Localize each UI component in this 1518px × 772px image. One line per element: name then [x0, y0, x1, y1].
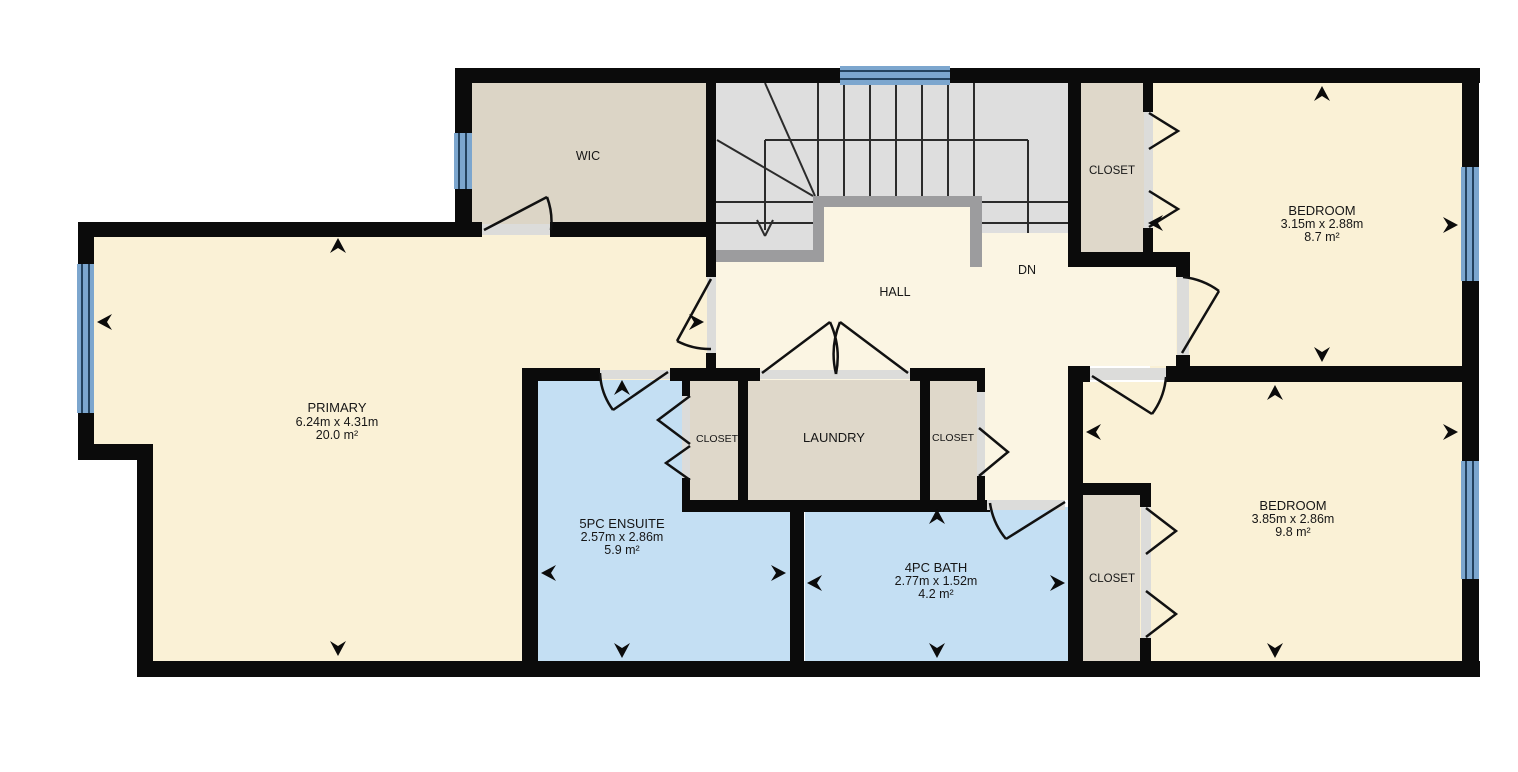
label-stairs-dn: DN — [1018, 263, 1036, 277]
wall-segment — [1462, 68, 1479, 677]
window-stairs — [840, 66, 950, 85]
wall-segment — [1068, 366, 1083, 661]
wall-segment — [1176, 255, 1190, 277]
wall-segment — [78, 222, 482, 237]
wall-segment — [137, 661, 1480, 677]
wall-segment — [910, 368, 985, 381]
wall-segment — [670, 368, 760, 381]
floorplan-canvas: WIC PRIMARY 6.24m x 4.31m 20.0 m² HALL D… — [0, 0, 1518, 772]
wall-segment — [1068, 83, 1081, 255]
room-hall-passage — [1068, 267, 1176, 366]
label-hall: HALL — [879, 285, 910, 299]
label-closet-ensuite: CLOSET — [696, 433, 739, 445]
wall-segment — [137, 444, 153, 672]
wall-segment — [1166, 366, 1462, 382]
wall-segment — [455, 68, 1480, 83]
label-bedroom-bottom: BEDROOM — [1259, 498, 1326, 513]
wall-segment — [1143, 228, 1153, 255]
wall-segment — [682, 500, 990, 512]
wall-segment — [790, 500, 804, 661]
label-bedroom-top: BEDROOM — [1288, 203, 1355, 218]
label-bedroom-bottom-dims: 3.85m x 2.86m — [1252, 512, 1335, 526]
label-bedroom-bottom-area: 9.8 m² — [1275, 525, 1310, 539]
room-hall-east — [982, 233, 1068, 263]
label-bath-area: 4.2 m² — [918, 587, 953, 601]
label-bedroom-top-dims: 3.15m x 2.88m — [1281, 217, 1364, 231]
label-laundry: LAUNDRY — [803, 430, 865, 445]
wall-segment — [682, 380, 690, 396]
label-closet-bed-bottom: CLOSET — [1089, 573, 1135, 585]
wall-segment — [1068, 483, 1150, 495]
label-primary-area: 20.0 m² — [316, 428, 358, 442]
wall-segment — [1140, 638, 1151, 661]
label-closet-bed-top: CLOSET — [1089, 165, 1135, 177]
wall-segment — [550, 222, 716, 237]
window-wic — [454, 133, 472, 189]
wall-segment — [1068, 252, 1190, 267]
label-primary: PRIMARY — [308, 400, 367, 415]
stairwell-opening — [824, 207, 970, 250]
wall-segment — [1143, 83, 1153, 112]
wall-segment — [977, 380, 985, 392]
wall-segment — [682, 478, 690, 502]
wall-segment — [920, 380, 930, 502]
wall-segment — [738, 380, 748, 502]
wall-segment — [1140, 483, 1151, 507]
label-primary-dims: 6.24m x 4.31m — [296, 415, 379, 429]
label-wic: WIC — [576, 149, 600, 163]
window-bedroom-bottom — [1461, 461, 1479, 579]
wall-segment — [522, 368, 600, 381]
floorplan-svg: WIC PRIMARY 6.24m x 4.31m 20.0 m² HALL D… — [0, 0, 1518, 772]
wall-segment — [706, 75, 716, 277]
window-primary — [77, 264, 94, 413]
label-ensuite: 5PC ENSUITE — [579, 516, 665, 531]
window-bedroom-top — [1461, 167, 1479, 281]
label-ensuite-area: 5.9 m² — [604, 543, 639, 557]
wall-segment — [522, 368, 538, 661]
label-closet-hall: CLOSET — [932, 432, 975, 444]
label-bath: 4PC BATH — [905, 560, 968, 575]
label-ensuite-dims: 2.57m x 2.86m — [581, 530, 664, 544]
label-bath-dims: 2.77m x 1.52m — [895, 574, 978, 588]
wall-segment — [977, 476, 985, 502]
room-hall-arm — [985, 368, 1068, 500]
label-bedroom-top-area: 8.7 m² — [1304, 230, 1339, 244]
